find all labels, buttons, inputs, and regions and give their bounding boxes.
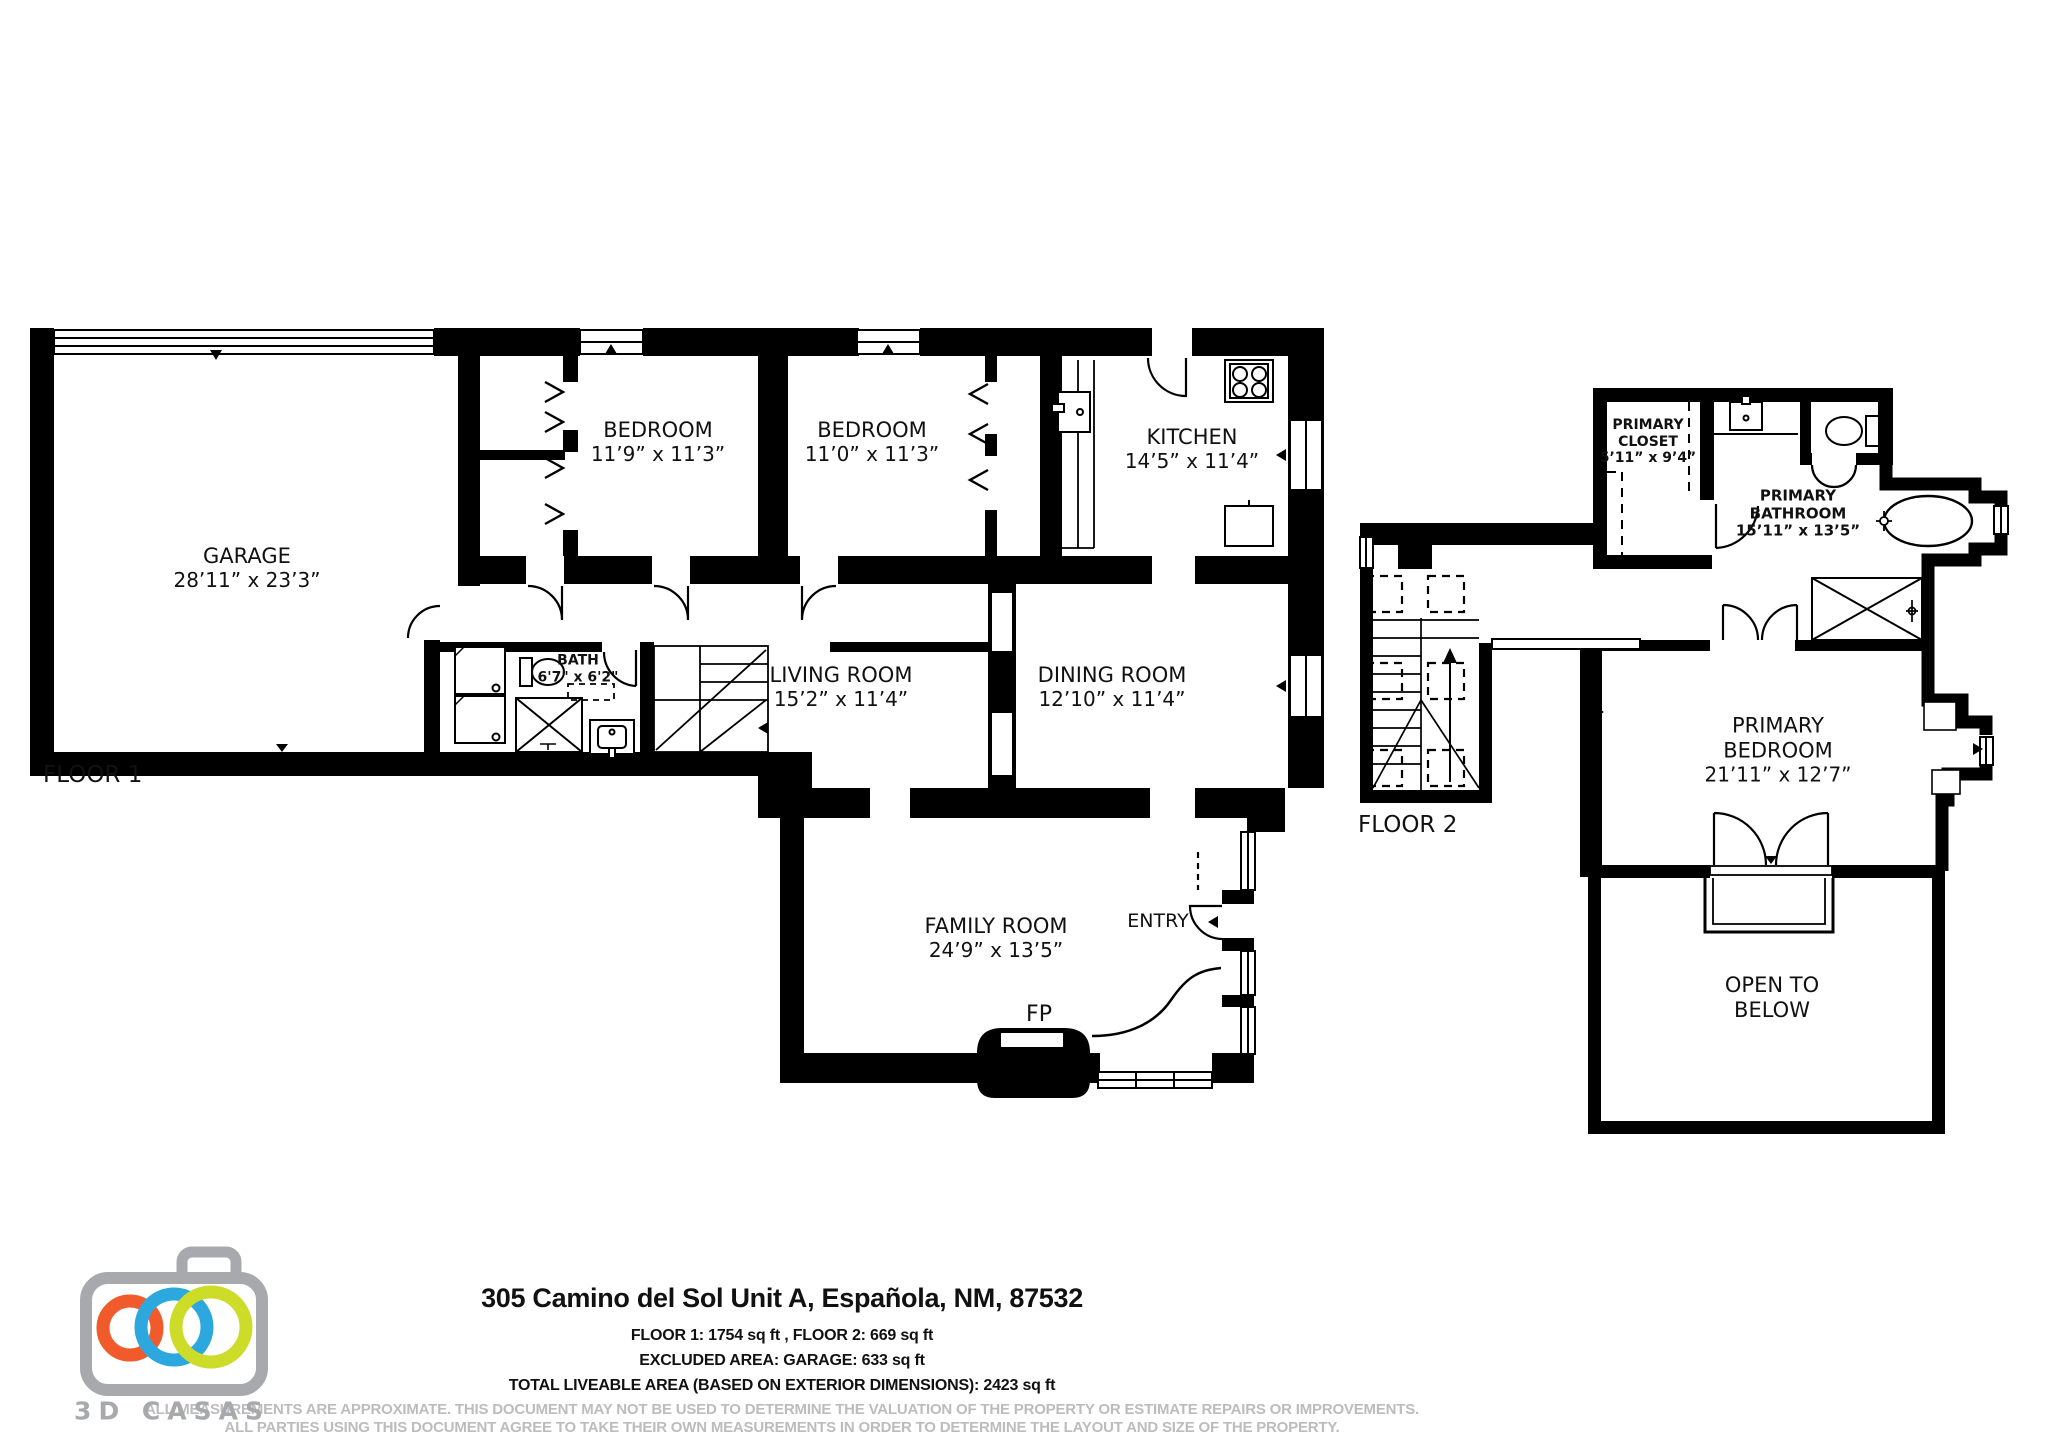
primary-bedroom-label: PRIMARY BEDROOM 21’11” x 12’7”	[1704, 713, 1851, 786]
fireplace-label: FP	[1026, 1002, 1052, 1028]
washer-dryer-icon	[455, 647, 505, 743]
kitchen-counter	[1062, 360, 1094, 548]
living-room-label: LIVING ROOM 15’2” x 11’4”	[770, 663, 913, 711]
primary-toilet-icon	[1826, 416, 1879, 446]
primary-closet-label: PRIMARY CLOSET 5’11” x 9’4”	[1600, 417, 1697, 467]
fireplace-icon	[977, 1028, 1090, 1098]
primary-bathroom-label: PRIMARY BATHROOM 15’11” x 13’5”	[1736, 487, 1860, 540]
dining-room-label: DINING ROOM 12’10” x 11’4”	[1038, 663, 1187, 711]
family-room-label: FAMILY ROOM 24’9” x 13’5”	[924, 914, 1067, 962]
room-dims: 28’11” x 23’3”	[173, 569, 320, 593]
landing-railing	[1492, 639, 1640, 649]
floor-areas-line: FLOOR 1: 1754 sq ft , FLOOR 2: 669 sq ft	[0, 1327, 1564, 1345]
kitchen-label: KITCHEN 14’5” x 11’4”	[1125, 425, 1259, 473]
shower-icon	[516, 698, 582, 752]
floor2-tag: FLOOR 2	[1358, 812, 1457, 838]
kitchen-sink-icon	[1052, 392, 1090, 432]
open-to-below-label: OPEN TO BELOW	[1725, 973, 1819, 1023]
brand-wordmark: 3D CASAS	[74, 1397, 270, 1426]
refrigerator-icon	[1225, 500, 1273, 546]
floor1-tag: FLOOR 1	[43, 762, 142, 788]
excluded-area-line: EXCLUDED AREA: GARAGE: 633 sq ft	[0, 1352, 1564, 1370]
balcony-railing	[1705, 866, 1833, 932]
bath-label: BATH 6'7" x 6'2"	[538, 652, 619, 685]
floor2-bay-notches	[1924, 702, 1960, 794]
bedroom2-label: BEDROOM 11’0” x 11’3”	[805, 418, 939, 466]
bedroom1-label: BEDROOM 11’9” x 11’3”	[591, 418, 725, 466]
room-name: GARAGE	[173, 544, 320, 569]
total-area-line: TOTAL LIVEABLE AREA (BASED ON EXTERIOR D…	[0, 1377, 1564, 1395]
garage-door-icon	[54, 330, 434, 354]
floor-plan-page: GARAGE 28’11” x 23’3” BEDROOM 11’9” x 11…	[0, 0, 2048, 1448]
toilet-icon	[520, 658, 532, 686]
property-address: 305 Camino del Sol Unit A, Española, NM,…	[0, 1283, 1564, 1314]
stove-icon	[1225, 360, 1273, 402]
entry-label: ENTRY	[1127, 910, 1188, 932]
stairs-up-icon	[1373, 618, 1479, 790]
primary-shower-icon	[1812, 578, 1922, 640]
bathroom-sink-icon	[590, 720, 634, 758]
bathtub-icon	[1876, 496, 1972, 546]
garage-label: GARAGE 28’11” x 23’3”	[173, 544, 320, 592]
stairs-icon	[654, 646, 768, 752]
